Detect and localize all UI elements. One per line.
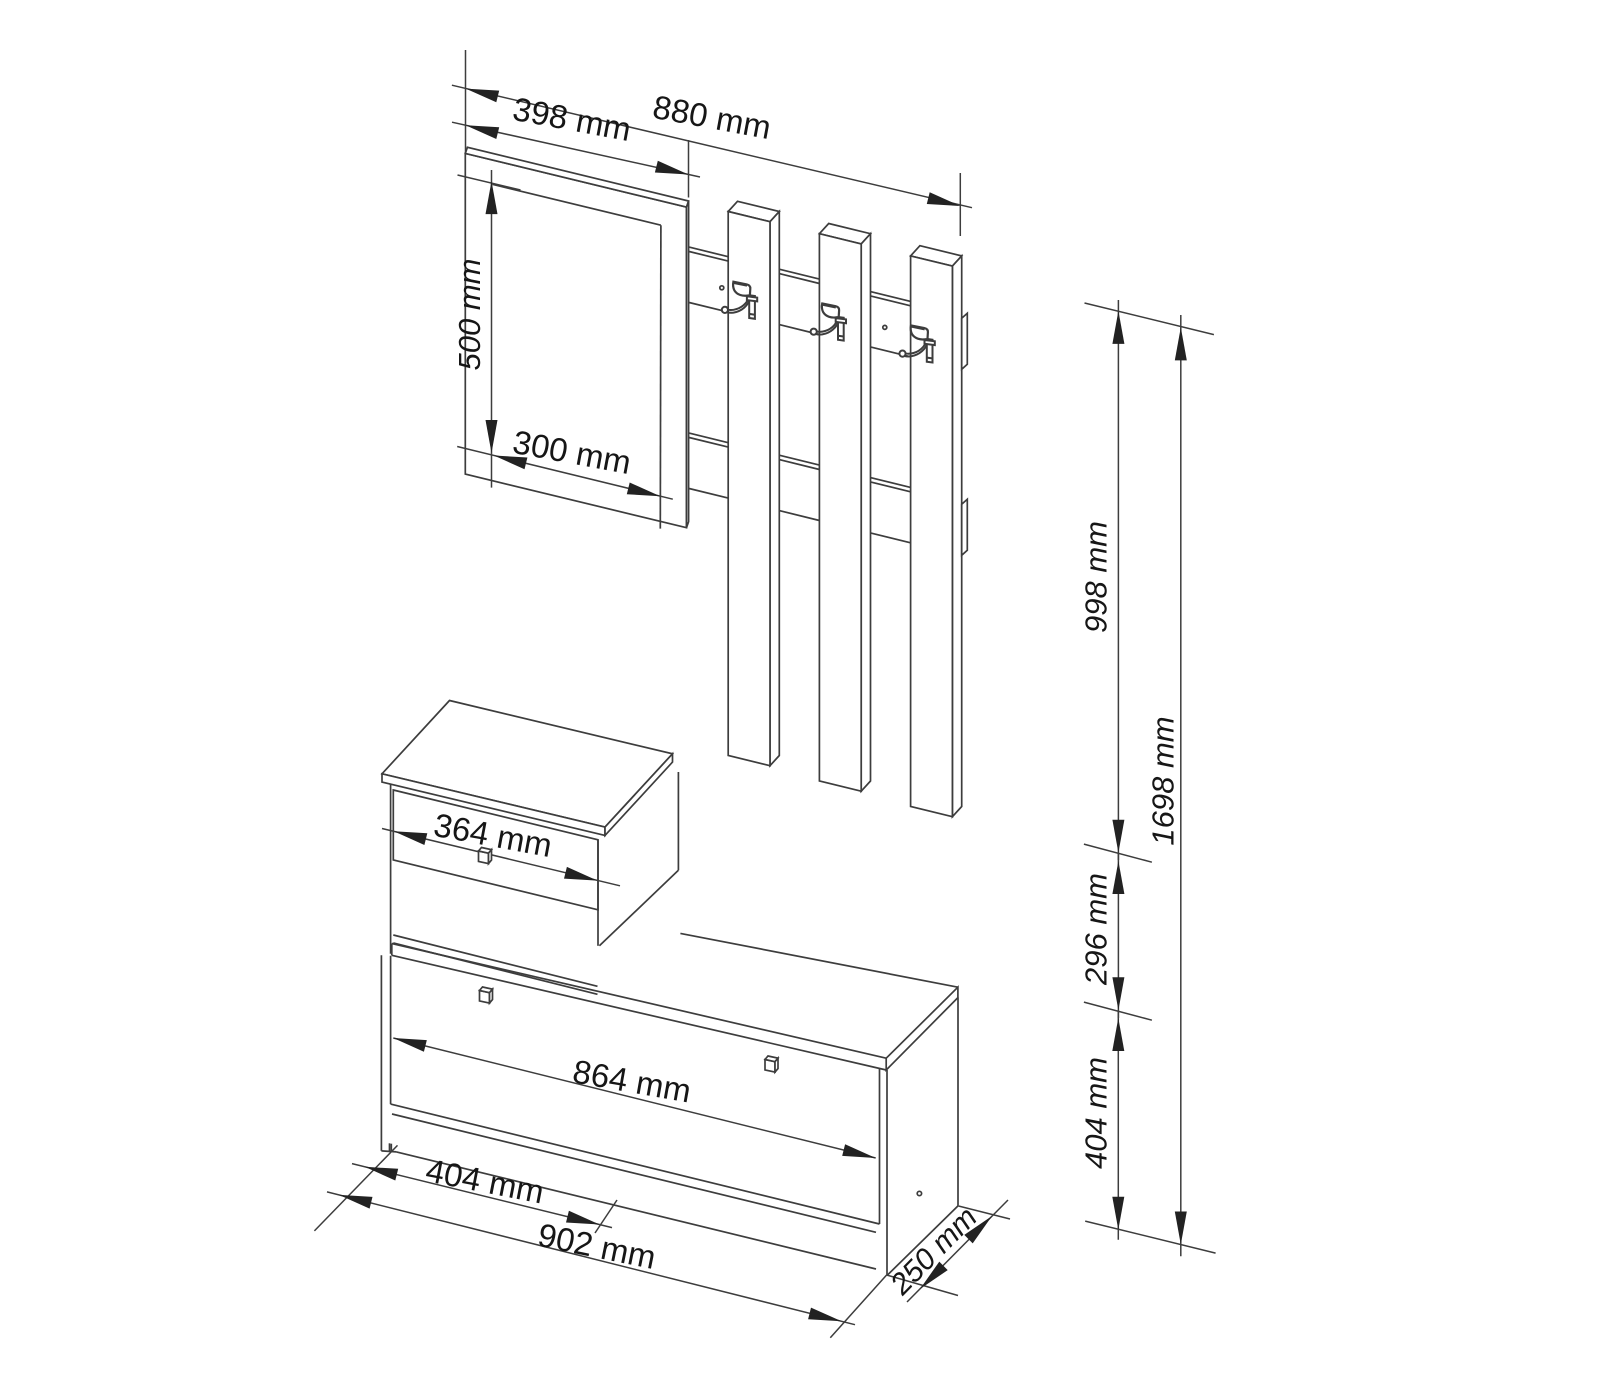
svg-text:500 mm: 500 mm xyxy=(452,259,487,371)
svg-text:998 mm: 998 mm xyxy=(1079,521,1114,633)
svg-text:404 mm: 404 mm xyxy=(1079,1057,1114,1169)
svg-text:296 mm: 296 mm xyxy=(1079,873,1114,986)
svg-text:1698 mm: 1698 mm xyxy=(1146,716,1181,845)
